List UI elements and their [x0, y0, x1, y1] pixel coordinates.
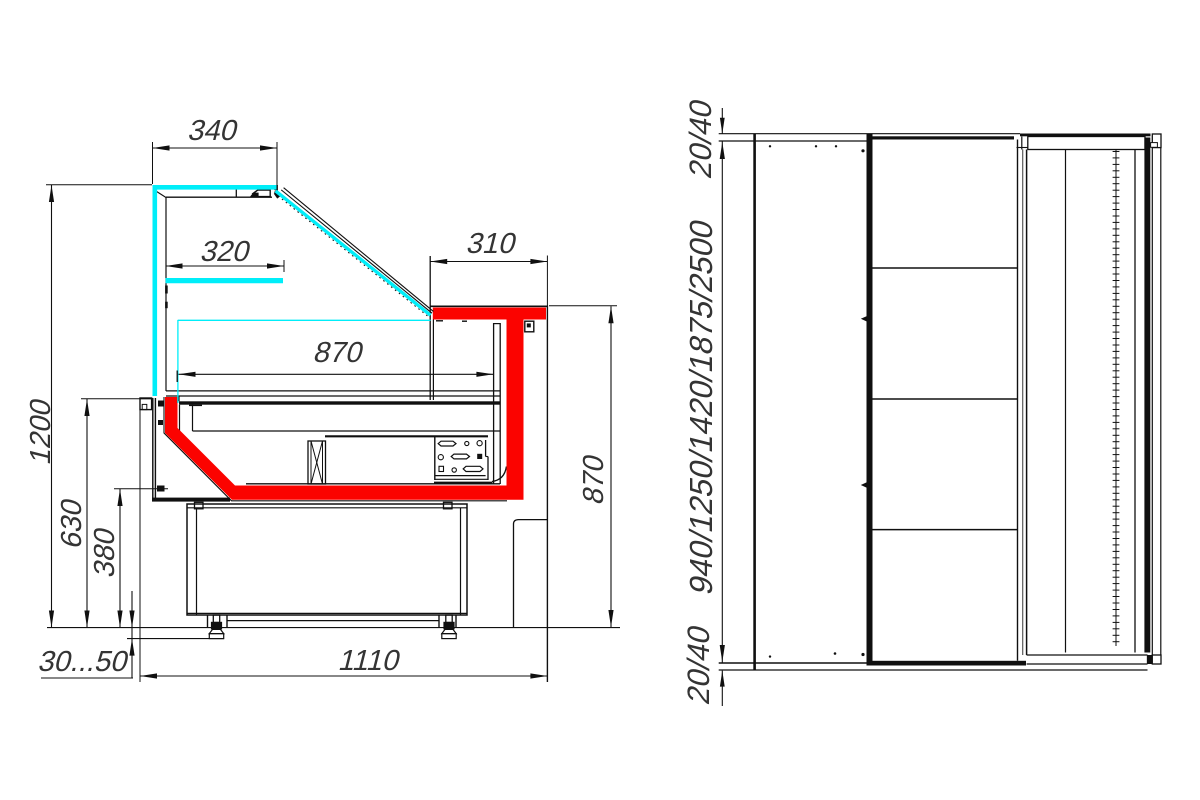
svg-text:30...50: 30...50: [35, 645, 132, 677]
svg-text:940/1250/1420/1875/2500: 940/1250/1420/1875/2500: [683, 216, 718, 598]
svg-text:1200: 1200: [24, 395, 56, 468]
svg-text:870: 870: [577, 451, 609, 507]
svg-text:320: 320: [198, 235, 254, 267]
svg-text:340: 340: [185, 114, 241, 146]
svg-text:1110: 1110: [336, 644, 404, 676]
svg-text:20/40: 20/40: [683, 95, 717, 181]
svg-text:630: 630: [55, 495, 87, 551]
svg-text:310: 310: [464, 227, 520, 259]
svg-text:20/40: 20/40: [681, 621, 715, 707]
svg-text:380: 380: [88, 524, 120, 580]
svg-text:870: 870: [311, 336, 367, 368]
